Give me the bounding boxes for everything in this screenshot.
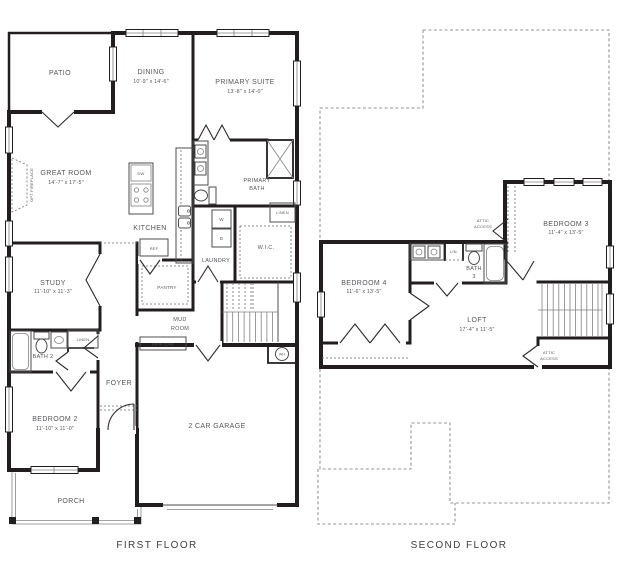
bedroom3-label: BEDROOM 3 <box>543 221 589 228</box>
first-floor-plan: PATIO DINING 10'-9" x 14'-6" PRIMARY SUI… <box>6 30 301 552</box>
window <box>524 179 544 186</box>
floor-plan-page: BEDROOM 3 11'-4" x 13'-5" BEDROOM 4 11'-… <box>0 0 617 582</box>
porch-label: PORCH <box>57 498 84 505</box>
attic-access-closet <box>508 186 515 252</box>
window <box>294 273 301 302</box>
front-door-opening <box>100 426 136 434</box>
pantry-label: PANTRY <box>157 285 176 290</box>
wic-label: W.I.C. <box>258 245 275 251</box>
bedroom4-dims: 11'-6" x 13'-5" <box>346 289 381 295</box>
second-floor-title: SECOND FLOOR <box>411 540 508 551</box>
dining-label: DINING <box>138 69 165 76</box>
toilet-icon <box>34 332 49 353</box>
stairs-first-floor <box>222 282 278 342</box>
bathtub-icon <box>10 331 31 372</box>
primary-suite-dims: 13'-8" x 14'-0" <box>227 89 263 95</box>
laundry-label: LAUNDRY <box>202 258 230 264</box>
linen-label: LIN. <box>450 249 458 254</box>
refrigerator-label: REF <box>150 246 159 251</box>
linen-primary-label: LINEN <box>276 210 289 215</box>
toilet-icon <box>195 187 217 204</box>
kitchen-label: KITCHEN <box>133 225 167 232</box>
sink-icon <box>51 332 67 348</box>
garage-label: 2 CAR GARAGE <box>188 423 245 430</box>
kitchen-fixtures <box>129 148 193 263</box>
patio-label: PATIO <box>49 70 71 77</box>
second-floor-plan: BEDROOM 3 11'-4" x 13'-5" BEDROOM 4 11'-… <box>318 30 614 551</box>
window <box>294 61 301 106</box>
window <box>6 221 13 246</box>
great-room-label: GREAT ROOM <box>40 170 91 177</box>
mud-room-label-line1: MUD <box>173 317 186 323</box>
bedroom3-dims: 11'-4" x 13'-5" <box>548 230 583 236</box>
loft-dims: 17'-4" x 11'-5" <box>459 327 494 333</box>
porch-post <box>134 517 141 524</box>
laundry-fixtures <box>212 210 231 247</box>
first-floor-windows <box>6 30 301 474</box>
foyer-label: FOYER <box>106 380 132 387</box>
washer-label: W <box>219 217 224 222</box>
linen-bath2-label: LINEN <box>77 337 90 342</box>
bath3-label-line2: 3 <box>472 274 475 280</box>
loft-label: LOFT <box>467 317 487 324</box>
great-room-dims: 14'-7" x 17'-5" <box>48 180 84 186</box>
window <box>31 467 78 474</box>
bedroom2-label: BEDROOM 2 <box>32 416 78 423</box>
wic-shelving-dashed <box>240 226 291 278</box>
attic-access-lower-line2: ACCESS <box>540 356 558 361</box>
study-dims: 11'-10" x 11'-3" <box>34 289 72 295</box>
window <box>110 47 117 81</box>
double-vanity-icon <box>410 244 444 260</box>
second-floor-labels: BEDROOM 3 11'-4" x 13'-5" BEDROOM 4 11'-… <box>341 218 589 551</box>
primary-bath-label-line1: PRIMARY <box>243 178 270 184</box>
window <box>294 181 301 205</box>
drop-zone-label: DROP ZONE <box>152 343 175 347</box>
patio-door-opening <box>42 108 74 116</box>
primary-bath-label-line2: BATH <box>249 186 264 192</box>
window <box>6 387 13 432</box>
roof-outline-dashed <box>318 30 609 524</box>
kitchen-sink-icon <box>179 206 191 228</box>
double-vanity-icon <box>193 141 208 185</box>
mud-room-label-line2: ROOM <box>171 326 189 332</box>
toilet-icon <box>466 244 482 265</box>
bath2-label: BATH 2 <box>33 354 54 360</box>
first-floor-title: FIRST FLOOR <box>116 540 197 551</box>
porch-post <box>92 517 99 524</box>
dryer-label: D <box>220 236 224 241</box>
bedroom2-dims: 11'-10" x 11'-0" <box>36 426 74 432</box>
window <box>318 292 325 317</box>
dining-dims: 10'-9" x 14'-6" <box>133 79 169 85</box>
bedroom3-door-swing <box>505 259 534 280</box>
window <box>6 257 13 292</box>
stove-icon <box>131 184 151 206</box>
bedroom4-label: BEDROOM 4 <box>341 280 387 287</box>
floor-plan-svg: BEDROOM 3 11'-4" x 13'-5" BEDROOM 4 11'-… <box>0 0 617 582</box>
study-label: STUDY <box>40 280 66 287</box>
porch-outline <box>9 470 141 524</box>
dishwasher-label: DW <box>137 171 144 176</box>
optional-fireplace-outline <box>12 158 27 212</box>
window <box>554 179 574 186</box>
attic-access-upper-line1: ATTIC <box>477 218 489 223</box>
window <box>583 179 602 186</box>
window <box>607 294 614 324</box>
bathtub-icon <box>484 244 506 283</box>
stairs-second-floor <box>538 284 602 336</box>
window <box>126 30 178 37</box>
water-heater-label: WH <box>279 353 285 357</box>
attic-access-upper-line2: ACCESS <box>474 224 492 229</box>
bedroom4-door-opening <box>406 293 414 320</box>
window <box>217 30 269 37</box>
study-door-opening <box>96 254 104 306</box>
shower-icon <box>267 140 293 178</box>
porch-post <box>9 517 16 524</box>
primary-suite-label: PRIMARY SUITE <box>215 79 274 86</box>
bath3-label-line1: BATH <box>466 266 481 272</box>
attic-access-lower-line1: ATTIC <box>543 350 555 355</box>
window <box>607 246 614 268</box>
opt-fireplace-label: OPT FIREPLACE <box>29 168 34 202</box>
window <box>6 127 13 153</box>
